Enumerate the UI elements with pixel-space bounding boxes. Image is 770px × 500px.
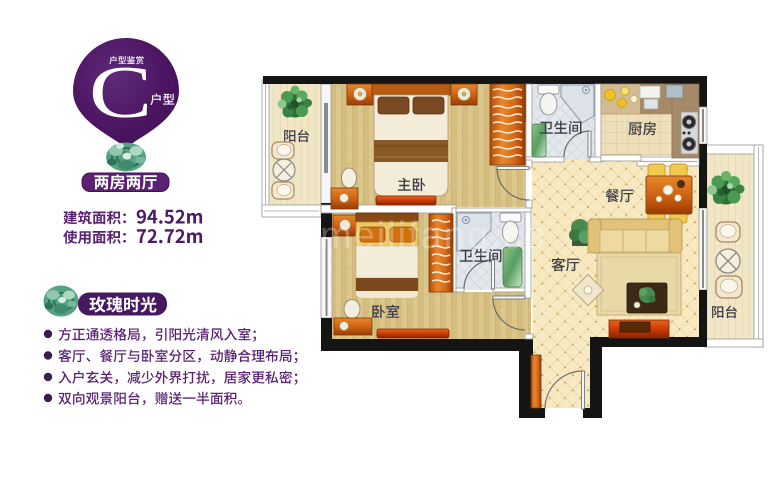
svg-text:meilifang.co: meilifang.co: [320, 215, 547, 257]
svg-text:C: C: [89, 52, 152, 134]
